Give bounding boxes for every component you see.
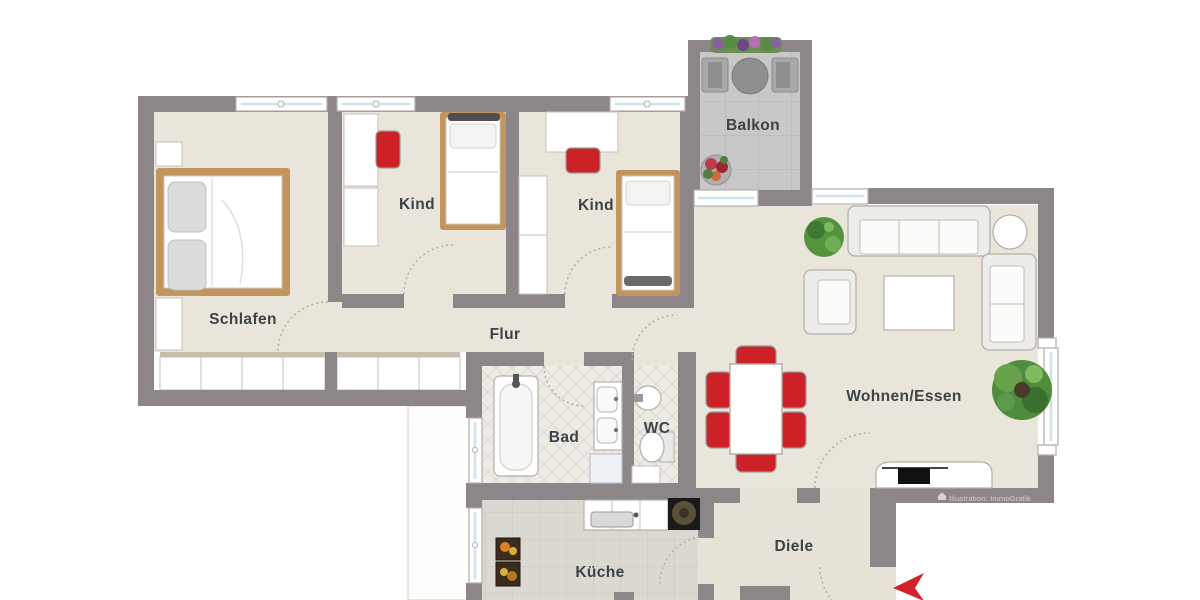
desk-chair — [566, 148, 600, 173]
washing-machine — [590, 454, 622, 483]
label-balkon: Balkon — [726, 117, 780, 134]
balcony-table — [732, 58, 768, 94]
single-bed — [616, 170, 680, 296]
label-kind2: Kind — [578, 197, 614, 214]
wall-picture — [496, 562, 520, 586]
nightstand — [156, 142, 182, 166]
side-table — [993, 215, 1027, 249]
desk-chair — [376, 131, 400, 168]
watermark-text: Illustration: ImmoGrafik — [949, 494, 1031, 503]
wardrobe — [344, 188, 378, 246]
dining-table — [730, 364, 782, 454]
pillow — [626, 181, 670, 205]
desk — [344, 114, 378, 186]
coffee-table — [884, 276, 954, 330]
window-kueche — [469, 508, 482, 583]
desk — [546, 112, 618, 152]
pillow — [168, 240, 206, 290]
label-wohnen: Wohnen/Essen — [846, 388, 962, 405]
label-kueche: Küche — [575, 564, 624, 581]
entrance-arrow-icon — [893, 573, 924, 600]
watermark: Illustration: ImmoGrafik — [938, 493, 1031, 504]
tv-icon — [898, 468, 930, 484]
wardrobe — [519, 176, 547, 294]
double-washbasin — [594, 382, 622, 450]
window-schlafen — [236, 97, 327, 111]
label-flur: Flur — [490, 326, 521, 343]
label-wc: WC — [644, 420, 671, 437]
window-bad — [469, 418, 482, 483]
balcony-chair — [772, 58, 798, 92]
blanket-fold — [624, 276, 672, 286]
bathtub — [494, 374, 538, 476]
flower-pot — [701, 155, 731, 185]
label-kind1: Kind — [399, 196, 435, 213]
flower-box — [710, 35, 782, 53]
label-diele: Diele — [774, 538, 813, 555]
armchair — [804, 270, 856, 334]
headboard — [448, 113, 500, 121]
pillow — [168, 182, 206, 232]
closet-row-flur — [337, 357, 460, 390]
wc-cabinet — [632, 466, 660, 483]
kitchen-sink — [591, 512, 633, 527]
sofa-3seat — [848, 206, 990, 256]
window-kind1 — [337, 97, 415, 111]
plant-large — [992, 360, 1052, 420]
dining-chair — [706, 412, 732, 448]
dining-chair — [780, 412, 806, 448]
wall-picture — [496, 538, 520, 560]
dining-chair — [706, 372, 732, 408]
balcony-door — [694, 190, 758, 206]
wc-washbasin — [634, 386, 661, 410]
window-kind2 — [610, 97, 685, 111]
window-wohnen-top — [812, 189, 868, 204]
pillow — [450, 124, 496, 148]
built-in-closets — [160, 352, 460, 390]
kitchen-counter — [584, 500, 668, 530]
double-bed — [156, 168, 290, 296]
stove — [668, 498, 700, 530]
floor-plan-drawing: Schlafen Kind Kind Flur Bad WC Küche Die… — [0, 0, 1200, 600]
floor-plan-page: Schlafen Kind Kind Flur Bad WC Küche Die… — [0, 0, 1200, 600]
balcony-chair — [702, 58, 728, 92]
label-bad: Bad — [549, 429, 579, 446]
faucet-icon — [634, 513, 639, 518]
single-bed — [440, 112, 506, 230]
plant — [804, 217, 844, 257]
label-schlafen: Schlafen — [209, 311, 277, 328]
sideboard-tv — [876, 462, 992, 488]
dining-chair — [780, 372, 806, 408]
dresser — [156, 298, 182, 350]
cooker-hood — [679, 508, 689, 518]
sofa-2seat — [982, 254, 1036, 350]
